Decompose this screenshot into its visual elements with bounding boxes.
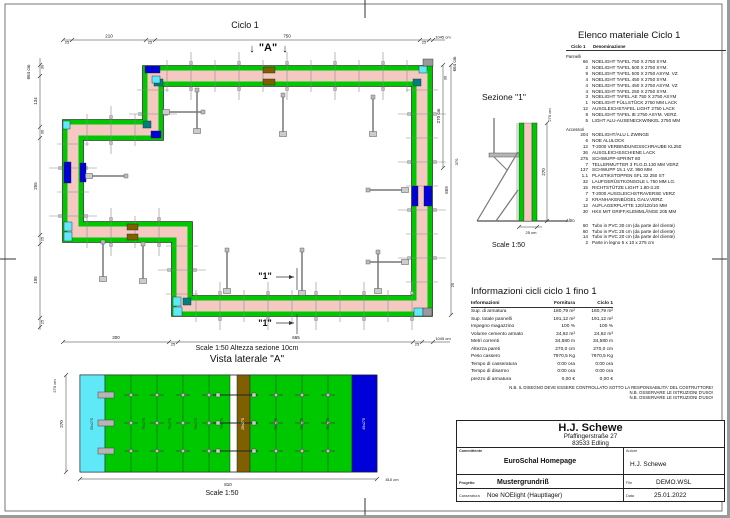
cycle-info-body: Sup. di armatura180,79 m²180,79 m²Sup. t…: [471, 308, 613, 383]
material-row: 2Parte in legno 5 x 10 x 275 cm: [566, 240, 726, 246]
dim-label: 75x275: [300, 418, 304, 430]
field-casseratura-value: Noe NOElight (Hauptlager): [487, 492, 562, 499]
field-committente-value: EuroSchal Homepage: [504, 458, 576, 465]
material-qty: 30: [566, 209, 588, 215]
info-row: Tempo di disarmo0:00 ora0:00 ora: [471, 368, 613, 376]
dim-label: 75x275: [168, 418, 172, 430]
dim-label: 25: [450, 282, 455, 287]
info-row: Metri correnti34,580 m34,580 m: [471, 338, 613, 346]
info-value: 34,580 m: [575, 338, 613, 346]
info-value: 0:00 ora: [537, 361, 575, 369]
dim-label: 810: [224, 482, 232, 487]
info-label: Impegno magazzino: [471, 323, 537, 331]
field-file: File DEMO.WSL: [624, 475, 724, 489]
company-address-line2: 83533 Edling: [457, 441, 724, 448]
disclaimer-notes: N.B. IL DISEGNO DEVE ESSERE CONTROLLATO …: [509, 385, 713, 401]
info-value: 7970,5 Kg: [537, 353, 575, 361]
info-value: 191,12 m²: [537, 316, 575, 324]
field-data-value: 25.01.2022: [654, 492, 687, 499]
dim-label: 75x275: [142, 418, 146, 430]
info-value: 0,00 €: [575, 376, 613, 384]
material-name: LIGHT ALU-AUSENECKWINKEL 2750 MM: [588, 118, 680, 124]
dim-label: 664 cm: [452, 56, 457, 71]
disclaimer-line: N.B. OSSERVARE LE ISTRUZIONI D'USO!: [509, 395, 713, 400]
material-row: 5LIGHT ALU-AUSENECKWINKEL 2750 MM: [566, 118, 726, 124]
info-value: 0,00 €: [537, 376, 575, 384]
side-view-scale: Scale 1:50: [205, 490, 238, 497]
dim-label: 30: [40, 64, 45, 69]
info-value: 100 %: [537, 323, 575, 331]
dim-label: 270 cm: [52, 379, 57, 393]
props: [86, 88, 409, 296]
material-list-body: Pannelli66NOELIGHT TAFEL 750 X 2750 SYM.…: [566, 54, 726, 246]
info-col-label: Informazioni: [471, 301, 537, 306]
info-value: 24,62 m³: [537, 331, 575, 339]
dim-label: 370: [454, 158, 459, 165]
info-label: Tempo di casseratura: [471, 361, 537, 369]
section-scale: Scale 1:50: [492, 242, 525, 249]
field-autore-label: Autore: [626, 449, 637, 453]
info-label: Sup. totale pannelli: [471, 316, 537, 324]
info-row: Tempo di casseratura0:00 ora0:00 ora: [471, 361, 613, 369]
dim-label: 25: [415, 342, 420, 347]
dim-label: 75x275: [194, 418, 198, 430]
field-progetto: Progetto Mustergrundriß: [457, 475, 624, 489]
dim-label: 25: [40, 319, 45, 324]
field-casseratura: Casseratura Noe NOElight (Hauptlager): [457, 489, 624, 501]
dim-label: 25: [40, 236, 45, 241]
dim-label: 25: [148, 40, 153, 45]
info-value: 0:00 ora: [537, 368, 575, 376]
info-value: 180,79 m²: [575, 308, 613, 316]
dim-label: 75x275: [274, 418, 278, 430]
side-view-title: Vista laterale "A": [210, 354, 285, 365]
info-row: Impegno magazzino100 %100 %: [471, 323, 613, 331]
dim-label: 25: [171, 342, 176, 347]
info-label: Tempo di disarmo: [471, 368, 537, 376]
dim-label: 270: [59, 420, 64, 428]
cycle-info-title: Informazioni cicli ciclo 1 fino 1: [471, 286, 613, 297]
info-value: 270,0 cm: [575, 346, 613, 354]
info-value: 0:00 ora: [575, 368, 613, 376]
dim-label: 270 cm: [436, 108, 441, 123]
info-value: 191,12 m²: [575, 316, 613, 324]
section-1-label: "1": [258, 271, 272, 281]
field-data: Data 25.01.2022: [624, 489, 724, 501]
info-label: Metri correnti: [471, 338, 537, 346]
cycle-info-header: Informazioni Fornitura Ciclo 1: [471, 301, 613, 308]
info-row: Volume cemento armato24,62 m³24,62 m³: [471, 331, 613, 339]
material-row: 30HKS MIT GRIFF,KLEMMLÄNGE 205 MM: [566, 209, 726, 215]
dim-label: 25x275: [241, 418, 245, 430]
side-view: Scale 1:50 Altezza sezione 10cmVista lat…: [52, 345, 399, 497]
info-row: prezzo di armatura0,00 €0,00 €: [471, 376, 613, 384]
title-block: H.J. Schewe Pfaffingerstraße 27 83533 Ed…: [456, 420, 725, 502]
dim-label: 134: [33, 97, 38, 105]
field-file-value: DEMO.WSL: [656, 479, 691, 486]
material-list-title: Elenco materiale Ciclo 1: [578, 30, 726, 41]
dim-label: 659: [444, 186, 449, 194]
info-value: 180,79 m²: [537, 308, 575, 316]
dim-label: 25: [65, 40, 70, 45]
field-progetto-value: Mustergrundriß: [497, 479, 549, 486]
material-name: Parte in legno 5 x 10 x 275 cm: [588, 240, 654, 246]
dim-label: 210: [105, 34, 113, 39]
field-data-label: Data: [626, 490, 634, 503]
section-a-arrow: ↓: [282, 43, 288, 55]
dim-label: 45x275: [362, 418, 366, 430]
info-row: Altezza pareti270,0 cm270,0 cm: [471, 346, 613, 354]
field-committente: Committente EuroSchal Homepage: [457, 448, 624, 475]
field-casseratura-label: Casseratura: [459, 490, 480, 503]
info-value: 0:00 ora: [575, 361, 613, 369]
material-list-col-name: Denominazione: [590, 44, 625, 49]
section-a-arrow: ↓: [249, 43, 255, 55]
material-list: Elenco materiale Ciclo 1 Ciclo 1 Denomin…: [566, 30, 726, 246]
info-value: 7970,5 Kg: [575, 353, 613, 361]
info-value: 24,62 m³: [575, 331, 613, 339]
info-col-ciclo1: Ciclo 1: [575, 301, 613, 306]
dim-label: 810 cm: [385, 477, 399, 482]
field-committente-label: Committente: [459, 449, 482, 453]
dim-label: 25 cm: [526, 230, 538, 235]
info-row: Peso cassero7970,5 Kg7970,5 Kg: [471, 353, 613, 361]
dim-label: 665: [292, 335, 300, 340]
section-view: Sezione "1"270 cm27025 cmScale 1:50: [477, 92, 568, 249]
info-label: Altezza pareti: [471, 346, 537, 354]
section-1-label: "1": [258, 318, 272, 328]
info-label: Volume cemento armato: [471, 331, 537, 339]
title-block-header: H.J. Schewe Pfaffingerstraße 27 83533 Ed…: [457, 421, 724, 448]
dim-label: 75x275: [220, 418, 224, 430]
info-label: Peso cassero: [471, 353, 537, 361]
dim-label: 255: [33, 182, 38, 190]
material-qty: 5: [566, 118, 588, 124]
dim-label: 1045 cm: [435, 35, 451, 40]
section-title: Sezione "1": [482, 92, 526, 102]
info-value: 270,0 cm: [537, 346, 575, 354]
info-value: 34,580 m: [537, 338, 575, 346]
dim-label: 25: [422, 40, 427, 45]
info-col-fornitura: Fornitura: [537, 301, 575, 306]
info-label: prezzo di armatura: [471, 376, 537, 384]
material-list-col-qty: Ciclo 1: [566, 44, 590, 49]
dim-label: 50x275: [90, 418, 94, 430]
title-block-grid: Committente EuroSchal Homepage Autore H.…: [457, 448, 724, 501]
material-qty: 2: [566, 240, 588, 246]
dim-label: 270 cm: [547, 108, 552, 122]
info-row: Sup. totale pannelli191,12 m²191,12 m²: [471, 316, 613, 324]
dim-label: 1045 cm: [435, 336, 451, 341]
info-label: Sup. di armatura: [471, 308, 537, 316]
dim-label: 195: [33, 276, 38, 284]
info-value: 100 %: [575, 323, 613, 331]
section-a-label: "A": [259, 42, 277, 54]
material-list-header: Ciclo 1 Denominazione: [566, 44, 726, 51]
dim-label: 750: [283, 34, 291, 39]
field-autore: Autore H.J. Schewe: [624, 448, 724, 475]
dim-label: 30: [40, 129, 45, 134]
material-name: HKS MIT GRIFF,KLEMMLÄNGE 205 MM: [588, 209, 676, 215]
dim-label: 75x275: [326, 418, 330, 430]
field-autore-value: H.J. Schewe: [630, 461, 667, 468]
cycle-info-table: Informazioni cicli ciclo 1 fino 1 Inform…: [471, 286, 613, 383]
dim-label: 270: [541, 168, 546, 176]
dim-label: 664 cm: [26, 64, 31, 79]
info-row: Sup. di armatura180,79 m²180,79 m²: [471, 308, 613, 316]
wall-ties: [49, 52, 446, 330]
dim-label: 30: [443, 75, 448, 80]
dim-label: 300: [112, 335, 120, 340]
section-marker-a: ↓↓"A": [249, 42, 288, 55]
plan-title: Ciclo 1: [231, 20, 259, 30]
side-view-scale-note: Scale 1:50 Altezza sezione 10cm: [196, 345, 299, 352]
